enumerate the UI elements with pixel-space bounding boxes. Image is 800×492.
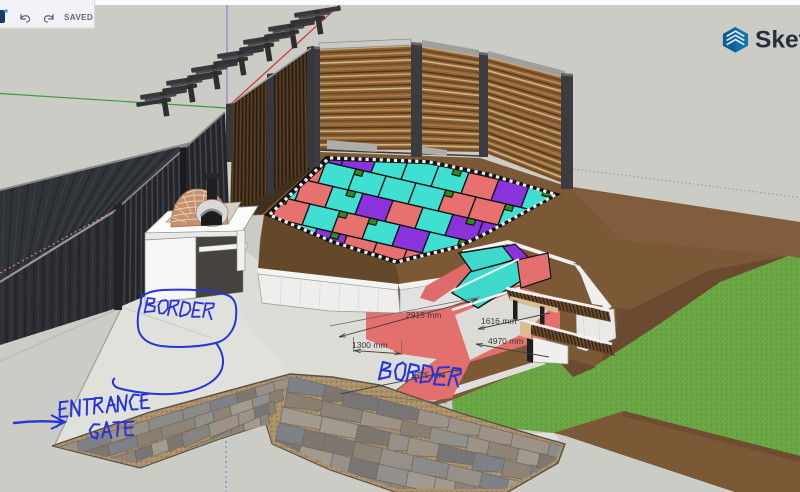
svg-text:1300 mm: 1300 mm — [352, 340, 387, 350]
svg-text:4970 mm: 4970 mm — [488, 336, 523, 346]
svg-text:1616 mm: 1616 mm — [481, 316, 516, 326]
svg-text:2915 mm: 2915 mm — [406, 310, 441, 320]
svg-text:Sketch: Sketch — [755, 27, 800, 54]
svg-text:SAVED: SAVED — [64, 13, 93, 22]
